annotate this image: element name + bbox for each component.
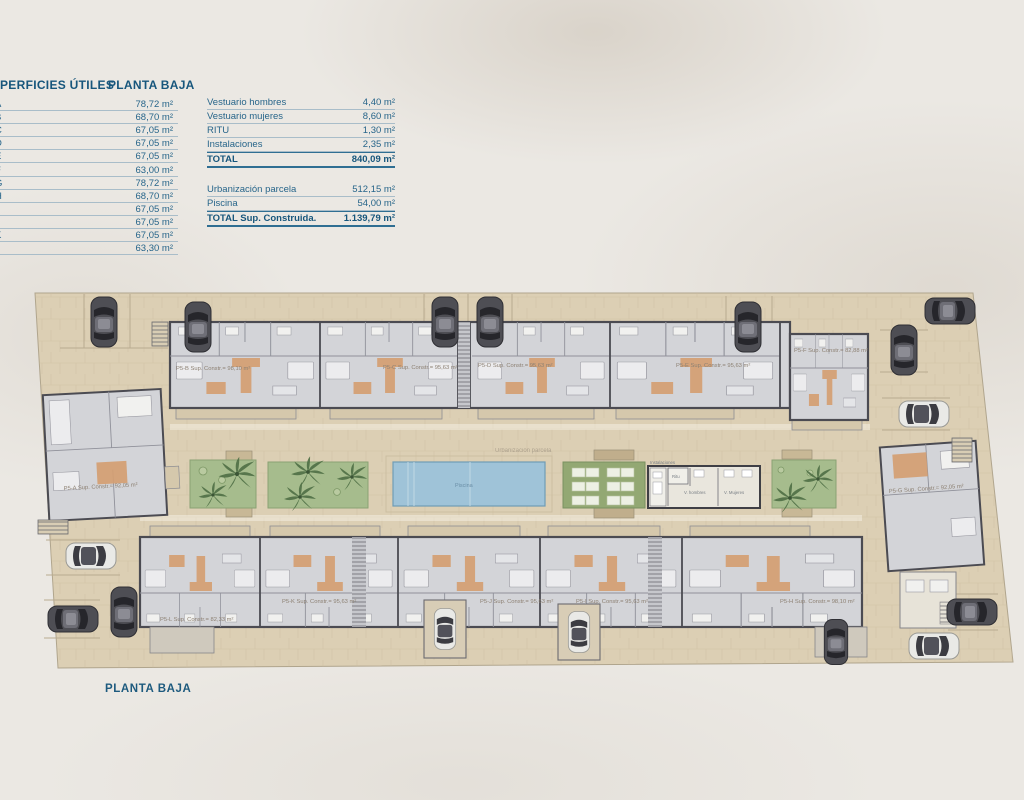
surface-row: F63,00 m²	[0, 163, 178, 176]
surface-row: E67,05 m²	[0, 150, 178, 163]
surface-row: L63,30 m²	[0, 242, 178, 255]
summary-row: Vestuario mujeres8,60 m²	[207, 110, 395, 124]
surface-row: B68,70 m²	[0, 111, 178, 124]
surface-row: C67,05 m²	[0, 124, 178, 137]
car-icon	[66, 543, 116, 569]
lawn-2	[268, 456, 368, 511]
total-row: TOTAL840,09 m²	[207, 152, 395, 168]
surface-row: H68,70 m²	[0, 190, 178, 203]
car-icon	[434, 609, 455, 650]
surface-row: I67,05 m²	[0, 203, 178, 216]
car-icon	[925, 298, 975, 324]
stairs	[952, 438, 972, 462]
floor-title: PLANTA BAJA	[108, 78, 195, 92]
unit-label-b: P5-B Sup. Constr.= 98,10 m²	[176, 366, 250, 372]
bush	[334, 489, 341, 496]
surface-row: J67,05 m²	[0, 216, 178, 229]
car-icon	[568, 612, 589, 653]
summary-row: Vestuario hombres4,40 m²	[207, 96, 395, 110]
bush	[219, 477, 226, 484]
unit-label-c: P5-C Sup. Constr.= 95,63 m²	[383, 365, 458, 371]
unit-label-f: P5-F Sup. Constr.= 82,88 m²	[794, 348, 868, 354]
car-icon	[899, 401, 949, 427]
car-icon	[185, 302, 211, 352]
stairs	[152, 322, 168, 346]
car-icon	[909, 633, 959, 659]
table-header: PERFICIES ÚTILES PLANTA BAJA	[0, 78, 178, 98]
car-icon	[91, 297, 117, 347]
stairs	[38, 520, 68, 534]
summary-row: Urbanización parcela512,15 m²	[207, 183, 395, 197]
unit-label-d: P5-D Sup. Constr.= 95,63 m²	[478, 363, 553, 369]
car-icon	[735, 302, 761, 352]
pool-label: Piscina	[455, 483, 474, 489]
car-icon	[48, 606, 98, 632]
utility-label: Instalaciones	[650, 460, 675, 465]
surfaces-title: PERFICIES ÚTILES	[0, 78, 114, 92]
stair-core	[352, 537, 366, 627]
surface-row: D67,05 m²	[0, 137, 178, 150]
unit-label-l: P5-L Sup. Constr.= 82,33 m²	[160, 617, 233, 623]
car-icon	[432, 297, 458, 347]
summary-row: RITU1,30 m²	[207, 124, 395, 138]
unit-label-e: P5-E Sup. Constr.= 95,63 m²	[676, 363, 750, 369]
summary-table: Vestuario hombres4,40 m² Vestuario mujer…	[207, 96, 395, 227]
surface-row: K67,05 m²	[0, 229, 178, 242]
lawn-1	[190, 451, 256, 517]
unit-label-j: P5-J Sup. Constr.= 95,63 m²	[480, 599, 553, 605]
floor-label: PLANTA BAJA	[105, 683, 191, 695]
pool: Piscina	[386, 456, 552, 512]
total-built-row: TOTAL Sup. Construida.1.139,79 m²	[207, 211, 395, 227]
stair-core	[648, 537, 662, 627]
summary-row: Instalaciones2,35 m²	[207, 138, 395, 152]
vestuario-mujeres-label: V. Mujeres	[724, 490, 744, 495]
surface-row: A78,72 m²	[0, 98, 178, 111]
bush	[199, 467, 207, 475]
parcel-label: Urbanización parcela	[495, 448, 552, 454]
car-icon	[947, 599, 997, 625]
building-a: P5-A Sup. Constr.= 92,05 m²	[43, 388, 181, 521]
car-icon	[824, 620, 847, 665]
useful-surfaces-table: PERFICIES ÚTILES PLANTA BAJA A78,72 m² B…	[0, 78, 178, 255]
utility-building: Instalaciones Ritu V. hombres V. Mujeres	[648, 460, 760, 508]
page: { "header": { "surfaces_title": "PERFICI…	[0, 0, 1024, 800]
car-icon	[477, 297, 503, 347]
surface-row: G78,72 m²	[0, 177, 178, 190]
summary-row: Piscina54,00 m²	[207, 197, 395, 211]
lawn-3	[772, 450, 836, 517]
ritu-label: Ritu	[672, 474, 680, 479]
unit-label-h: P5-H Sup. Constr.= 98,10 m²	[780, 599, 855, 605]
car-icon	[891, 325, 917, 375]
unit-label-k: P5-K Sup. Constr.= 95,63 m²	[282, 599, 356, 605]
walkway	[170, 424, 870, 430]
unit-label-i: P5-I Sup. Constr.= 95,63 m²	[576, 599, 648, 605]
car-icon	[111, 587, 137, 637]
bush	[778, 467, 784, 473]
stair-core	[458, 322, 470, 408]
vestuario-hombres-label: V. hombres	[684, 490, 706, 495]
